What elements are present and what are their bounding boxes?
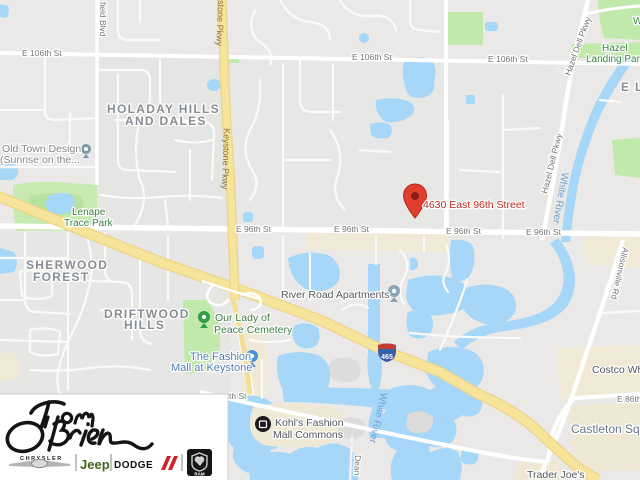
svg-text:465: 465	[381, 354, 393, 361]
svg-text:Costco Wh: Costco Wh	[592, 364, 640, 376]
svg-text:Castleton Squ: Castleton Squ	[571, 422, 640, 436]
svg-text:E 96th St: E 96th St	[236, 224, 272, 234]
svg-text:DODGE: DODGE	[114, 460, 153, 471]
svg-text:Trace Park: Trace Park	[64, 218, 114, 229]
svg-text:field Blvd: field Blvd	[98, 2, 108, 37]
svg-text:W: W	[633, 16, 640, 27]
svg-text:RAM: RAM	[194, 472, 204, 477]
svg-text:Our Lady of: Our Lady of	[215, 312, 270, 324]
svg-text:AND DALES: AND DALES	[125, 114, 207, 128]
svg-text:E 96th St: E 96th St	[446, 226, 482, 236]
svg-text:4630 East 96th Street: 4630 East 96th Street	[423, 199, 525, 211]
svg-text:E 106th St: E 106th St	[22, 48, 62, 58]
svg-text:Mall at Keystone: Mall at Keystone	[171, 362, 252, 374]
svg-text:E 106th St: E 106th St	[352, 52, 392, 62]
svg-text:Hazel: Hazel	[602, 43, 628, 54]
svg-text:E 86th St: E 86th St	[617, 394, 640, 404]
svg-text:Lenape: Lenape	[72, 207, 106, 218]
svg-text:River Road Apartments: River Road Apartments	[281, 289, 390, 301]
svg-text:E 106th St: E 106th St	[488, 54, 528, 64]
svg-text:Dean: Dean	[352, 455, 363, 476]
svg-text:E 96th St: E 96th St	[526, 227, 562, 237]
svg-text:th St: th St	[229, 391, 247, 401]
svg-text:FOREST: FOREST	[33, 270, 89, 284]
svg-text:Trader Joe's: Trader Joe's	[527, 469, 585, 480]
svg-text:(Sunrise on the...: (Sunrise on the...	[0, 154, 80, 166]
svg-text:Kohl's Fashion: Kohl's Fashion	[275, 417, 344, 429]
svg-text:Landing Par: Landing Par	[586, 54, 640, 65]
svg-text:E L: E L	[621, 80, 640, 94]
svg-text:E 96th St: E 96th St	[334, 224, 370, 234]
svg-text:stone Pkwy: stone Pkwy	[214, 0, 226, 47]
svg-text:Mall Commons: Mall Commons	[273, 429, 343, 441]
svg-text:Jeep: Jeep	[80, 457, 110, 472]
svg-text:Peace Cemetery: Peace Cemetery	[214, 324, 293, 336]
svg-text:HILLS: HILLS	[124, 318, 165, 332]
